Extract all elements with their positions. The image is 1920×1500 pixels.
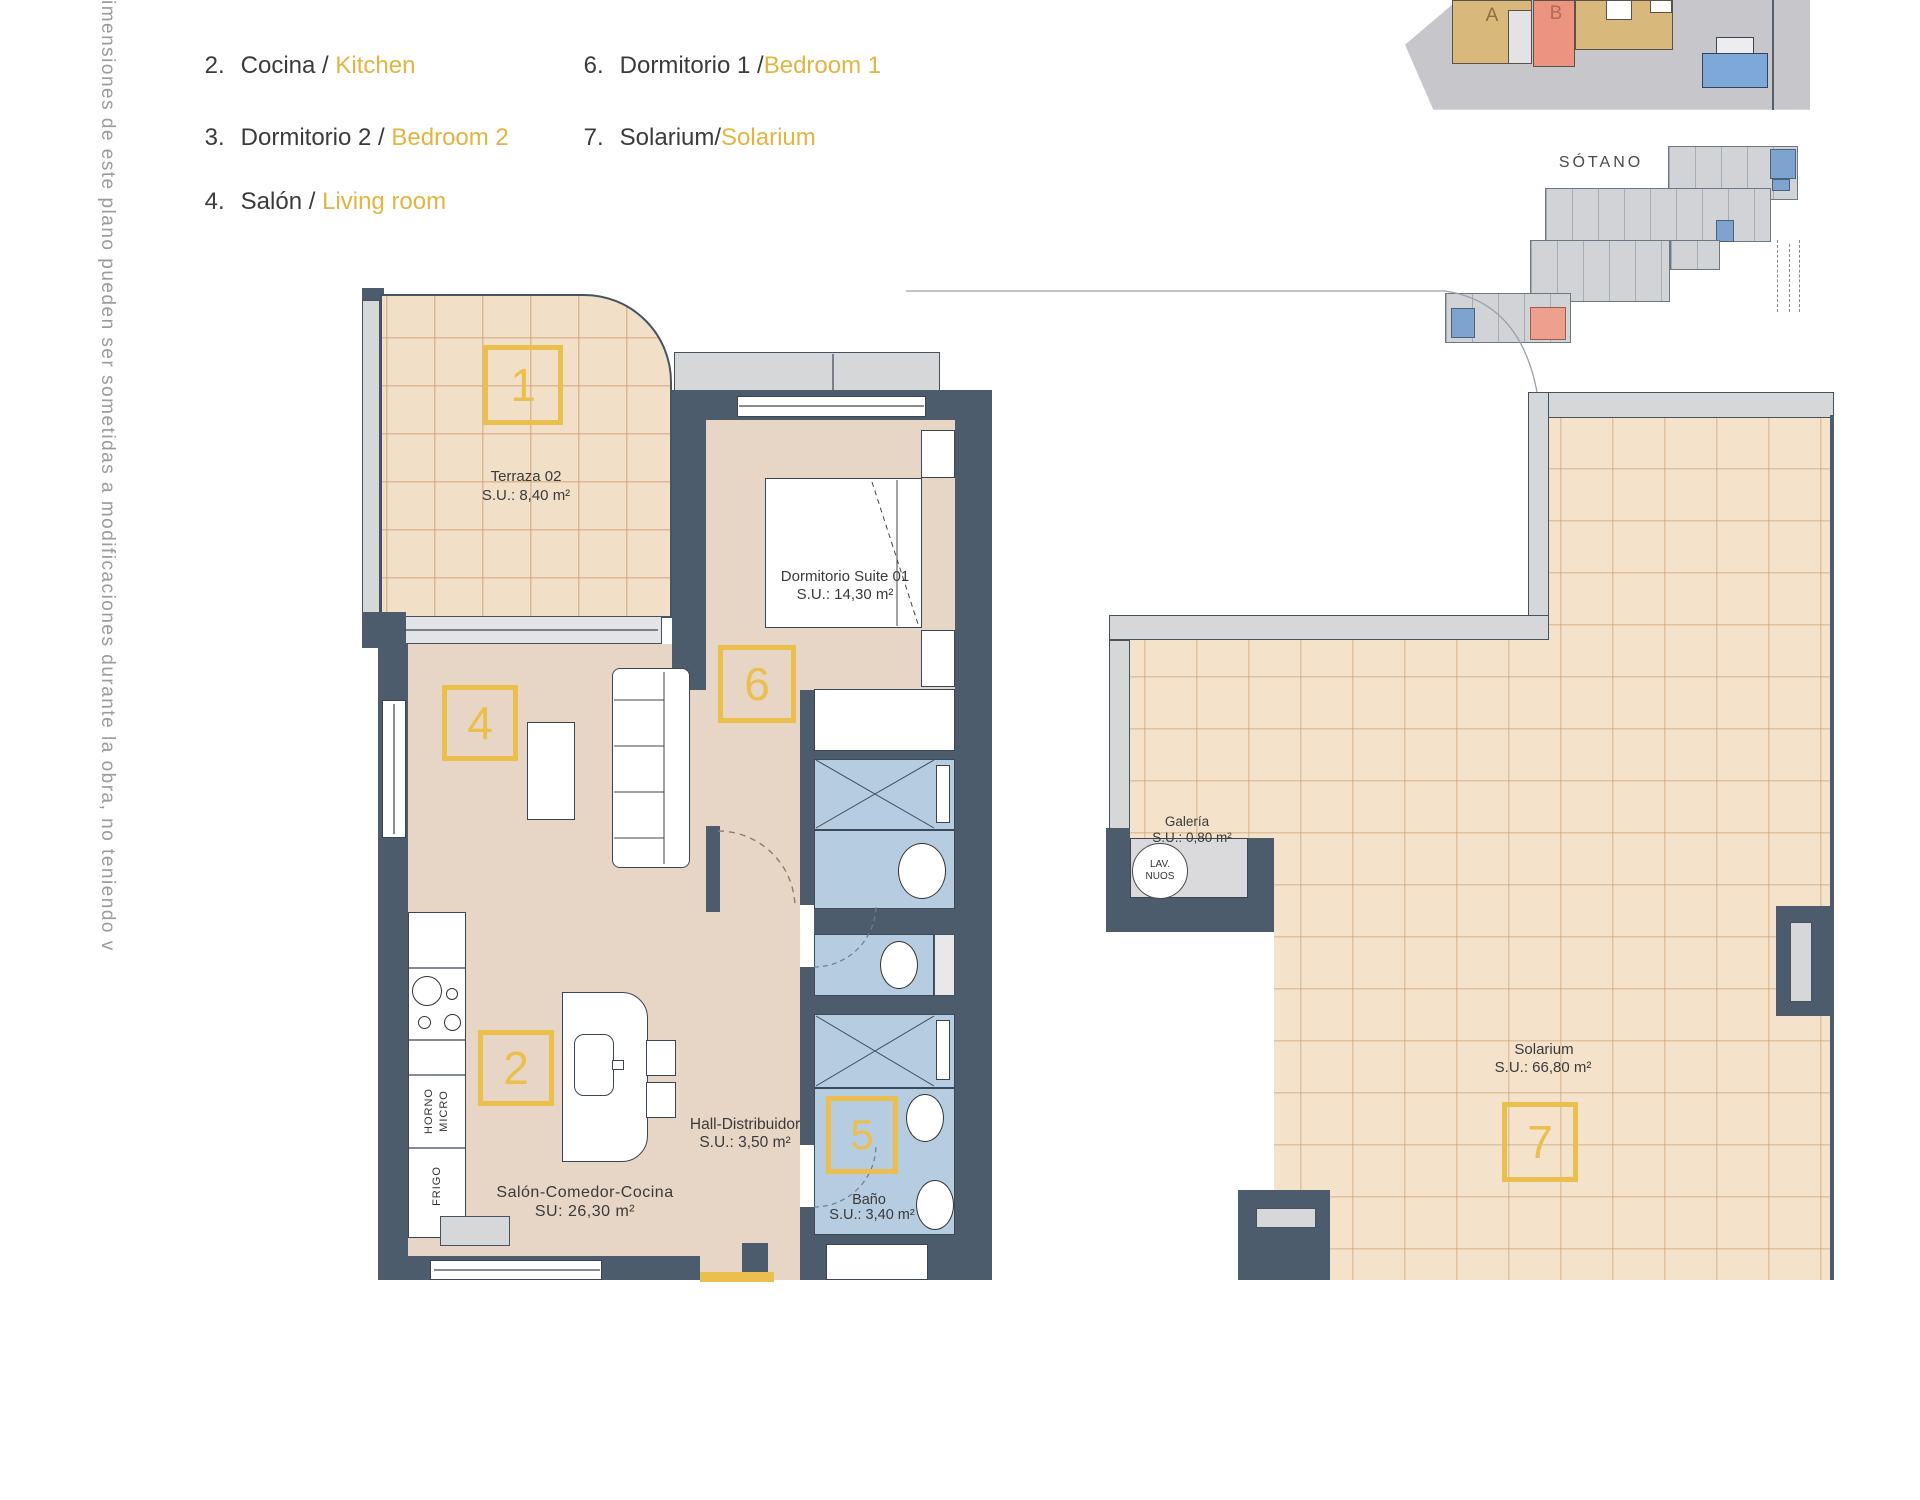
island-sink xyxy=(574,1034,614,1096)
bath1-sink xyxy=(898,843,946,899)
basement-cell-blue-3 xyxy=(1451,308,1475,338)
burner-small-1 xyxy=(446,988,458,1000)
site-label-b: B xyxy=(1550,2,1563,26)
legend-es: Solarium/ xyxy=(620,124,721,151)
basement-cell-blue-2 xyxy=(1716,220,1734,242)
legend-es: Cocina / xyxy=(241,52,336,79)
legend-num: 4. xyxy=(205,188,241,216)
legend-num: 3. xyxy=(205,124,241,152)
island-faucet xyxy=(612,1060,624,1070)
site-label-a: A xyxy=(1486,4,1499,28)
site-pool xyxy=(1702,53,1768,88)
shower-1 xyxy=(814,759,955,830)
room-tag-dormitorio: 6 xyxy=(718,645,796,723)
legend-item-salon: 4.Salón / Living room xyxy=(178,160,446,244)
label-frigo: FRIGO xyxy=(425,1150,449,1222)
legend-es: Salón / xyxy=(241,188,322,215)
basement-highlight-apartment xyxy=(1530,307,1566,340)
floor-plan-page: { "legend": { "items": [ {"num": "2.", "… xyxy=(0,0,1920,1280)
bath1-shelf xyxy=(934,934,955,996)
solarium-band-top xyxy=(1528,392,1834,418)
door-gap-bath1 xyxy=(800,905,814,967)
wall-sep-bath1 xyxy=(814,909,955,934)
label-salon-area: SU: 26,30 m² xyxy=(535,1202,635,1222)
room-tag-bano: 5 xyxy=(826,1096,898,1174)
solarium-bottom-block xyxy=(1238,1190,1330,1280)
wall-stub-hall-door xyxy=(706,826,720,912)
solarium-bottom-window xyxy=(1256,1208,1316,1228)
terrace-window-strip xyxy=(400,616,662,644)
bano-sink xyxy=(916,1180,954,1230)
label-terraza-name: Terraza 02 xyxy=(491,468,562,487)
kitchen-return xyxy=(440,1216,510,1246)
solarium-right-edge xyxy=(1830,415,1834,1280)
legend-num: 2. xyxy=(205,52,241,80)
washing-machine: LAV. NUOS xyxy=(1132,843,1188,899)
legend-en: Bedroom 2 xyxy=(391,124,508,151)
bed xyxy=(765,478,922,628)
legend-en: Kitchen xyxy=(335,52,415,79)
site-notch-1 xyxy=(1606,0,1632,20)
label-horno: HORNO xyxy=(422,1088,437,1134)
label-galeria-area: S.U.: 0,80 m² xyxy=(1152,830,1232,847)
wall-right-outer xyxy=(955,390,992,1280)
label-bano-area: S.U.: 3,40 m² xyxy=(829,1206,914,1224)
basement-cut-dash-2 xyxy=(1789,244,1790,312)
label-galeria-name: Galería xyxy=(1165,814,1209,831)
legend-en: Solarium xyxy=(721,124,816,151)
window-bottom-right xyxy=(826,1244,928,1280)
stool-2 xyxy=(646,1082,676,1118)
room-tag-3-sliver xyxy=(700,1272,774,1282)
nightstand-top xyxy=(921,430,955,478)
basement-cell-blue-1b xyxy=(1772,179,1790,191)
room-tag-terraza: 1 xyxy=(483,345,563,425)
site-stair-notch xyxy=(1508,10,1532,64)
galeria-wall-bottom xyxy=(1106,898,1274,932)
label-hall-name: Hall-Distribuidor xyxy=(690,1115,800,1134)
access-walkway xyxy=(674,352,940,392)
burner-small-2 xyxy=(418,1016,431,1029)
label-salon-name: Salón-Comedor-Cocina xyxy=(496,1183,673,1203)
shower-1-panel xyxy=(936,765,950,823)
label-hall-area: S.U.: 3,50 m² xyxy=(699,1133,790,1152)
solarium-floor-upper xyxy=(1549,418,1832,640)
window-bedroom-top xyxy=(737,396,926,417)
basement-title: SÓTANO xyxy=(1559,153,1643,173)
tv-stand xyxy=(527,722,575,820)
door-gap-bano xyxy=(800,1145,814,1207)
nightstand-bottom xyxy=(921,630,955,687)
label-solarium-name: Solarium xyxy=(1514,1041,1573,1060)
label-dormitorio-area: S.U.: 14,30 m² xyxy=(797,586,894,605)
site-edge-line xyxy=(1772,0,1774,110)
basement-cut-dash-3 xyxy=(1799,240,1800,312)
room-tag-salon: 4 xyxy=(442,685,518,761)
wall-stub-terrace-bottom xyxy=(362,612,406,648)
terrace-outer-band xyxy=(362,300,380,630)
legend-es: Dormitorio 2 / xyxy=(241,124,392,151)
terrace-floor xyxy=(380,294,672,618)
basement-cut-dash-1 xyxy=(1777,240,1778,312)
hall-floor xyxy=(672,690,800,1280)
shower-2-panel xyxy=(936,1020,950,1080)
legend-num: 7. xyxy=(584,124,620,152)
washer-label-1: LAV. xyxy=(1150,859,1170,871)
wall-terrace-bedroom xyxy=(672,390,706,690)
wardrobe xyxy=(814,689,955,751)
shower-2 xyxy=(814,1014,955,1088)
burner-large xyxy=(412,976,442,1006)
label-micro: MICRO xyxy=(437,1090,452,1132)
legend-en: Bedroom 1 xyxy=(764,52,881,79)
stool-1 xyxy=(646,1040,676,1076)
label-terraza-area: S.U.: 8,40 m² xyxy=(482,487,570,506)
window-bottom-left xyxy=(430,1260,602,1280)
solarium-band-left-lower xyxy=(1109,640,1130,830)
legend-en: Living room xyxy=(322,188,446,215)
legend-num: 6. xyxy=(584,52,620,80)
bath1-toilet xyxy=(880,941,918,989)
bano-toilet xyxy=(906,1094,944,1142)
room-tag-solarium: 7 xyxy=(1502,1102,1578,1182)
burner-small-3 xyxy=(444,1014,461,1031)
solarium-band-step xyxy=(1109,615,1549,640)
window-living-left xyxy=(382,700,406,838)
sofa xyxy=(612,668,690,868)
washer-label-2: NUOS xyxy=(1146,871,1175,883)
label-dormitorio-name: Dormitorio Suite 01 xyxy=(781,568,909,587)
basement-block-2 xyxy=(1545,188,1771,242)
legend-item-solarium: 7.Solarium/Solarium xyxy=(557,96,816,180)
legend-es: Dormitorio 1 / xyxy=(620,52,764,79)
wall-sep-wardrobe xyxy=(814,751,955,759)
basement-cell-blue-1 xyxy=(1770,149,1796,179)
label-horno-micro: HORNO MICRO xyxy=(412,1073,462,1149)
wall-sep-bath2 xyxy=(814,996,955,1014)
solarium-band-left-upper xyxy=(1528,392,1549,640)
basement-block-3b xyxy=(1670,240,1720,270)
label-solarium-area: S.U.: 66,80 m² xyxy=(1495,1059,1592,1078)
side-disclaimer-text: imensiones de este plano pueden ser some… xyxy=(96,0,118,1500)
site-notch-2 xyxy=(1650,0,1672,13)
solarium-pillar-inner xyxy=(1790,922,1812,1002)
room-tag-cocina: 2 xyxy=(478,1030,554,1106)
